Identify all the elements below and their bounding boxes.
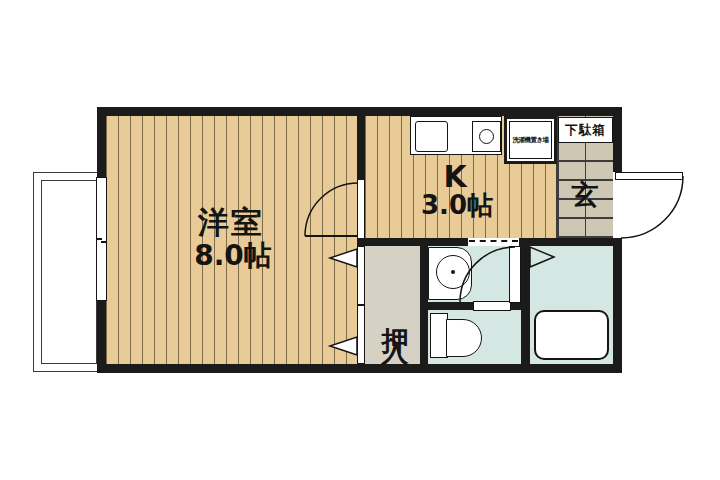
entrance-door-arc [621,176,683,238]
kitchen-name: K [385,161,525,193]
closet-door-marker-upper [330,249,357,267]
closet-label: 押入 [379,262,409,366]
western-room-name: 洋室 [131,206,331,239]
washroom-door-arc [460,247,515,302]
entrance-label: 玄 [559,181,611,209]
door-symbols-overlay [0,0,720,480]
bathroom-door-marker [530,247,554,267]
closet-door-marker-lower [330,337,357,355]
western-room-size: 8.0帖 [133,241,333,270]
kitchen-size: 3.0帖 [382,192,532,219]
floor-plan: 洗濯機置き場 下駄箱 洋室 8.0帖 K 3.0帖 玄 押入 [0,0,720,480]
